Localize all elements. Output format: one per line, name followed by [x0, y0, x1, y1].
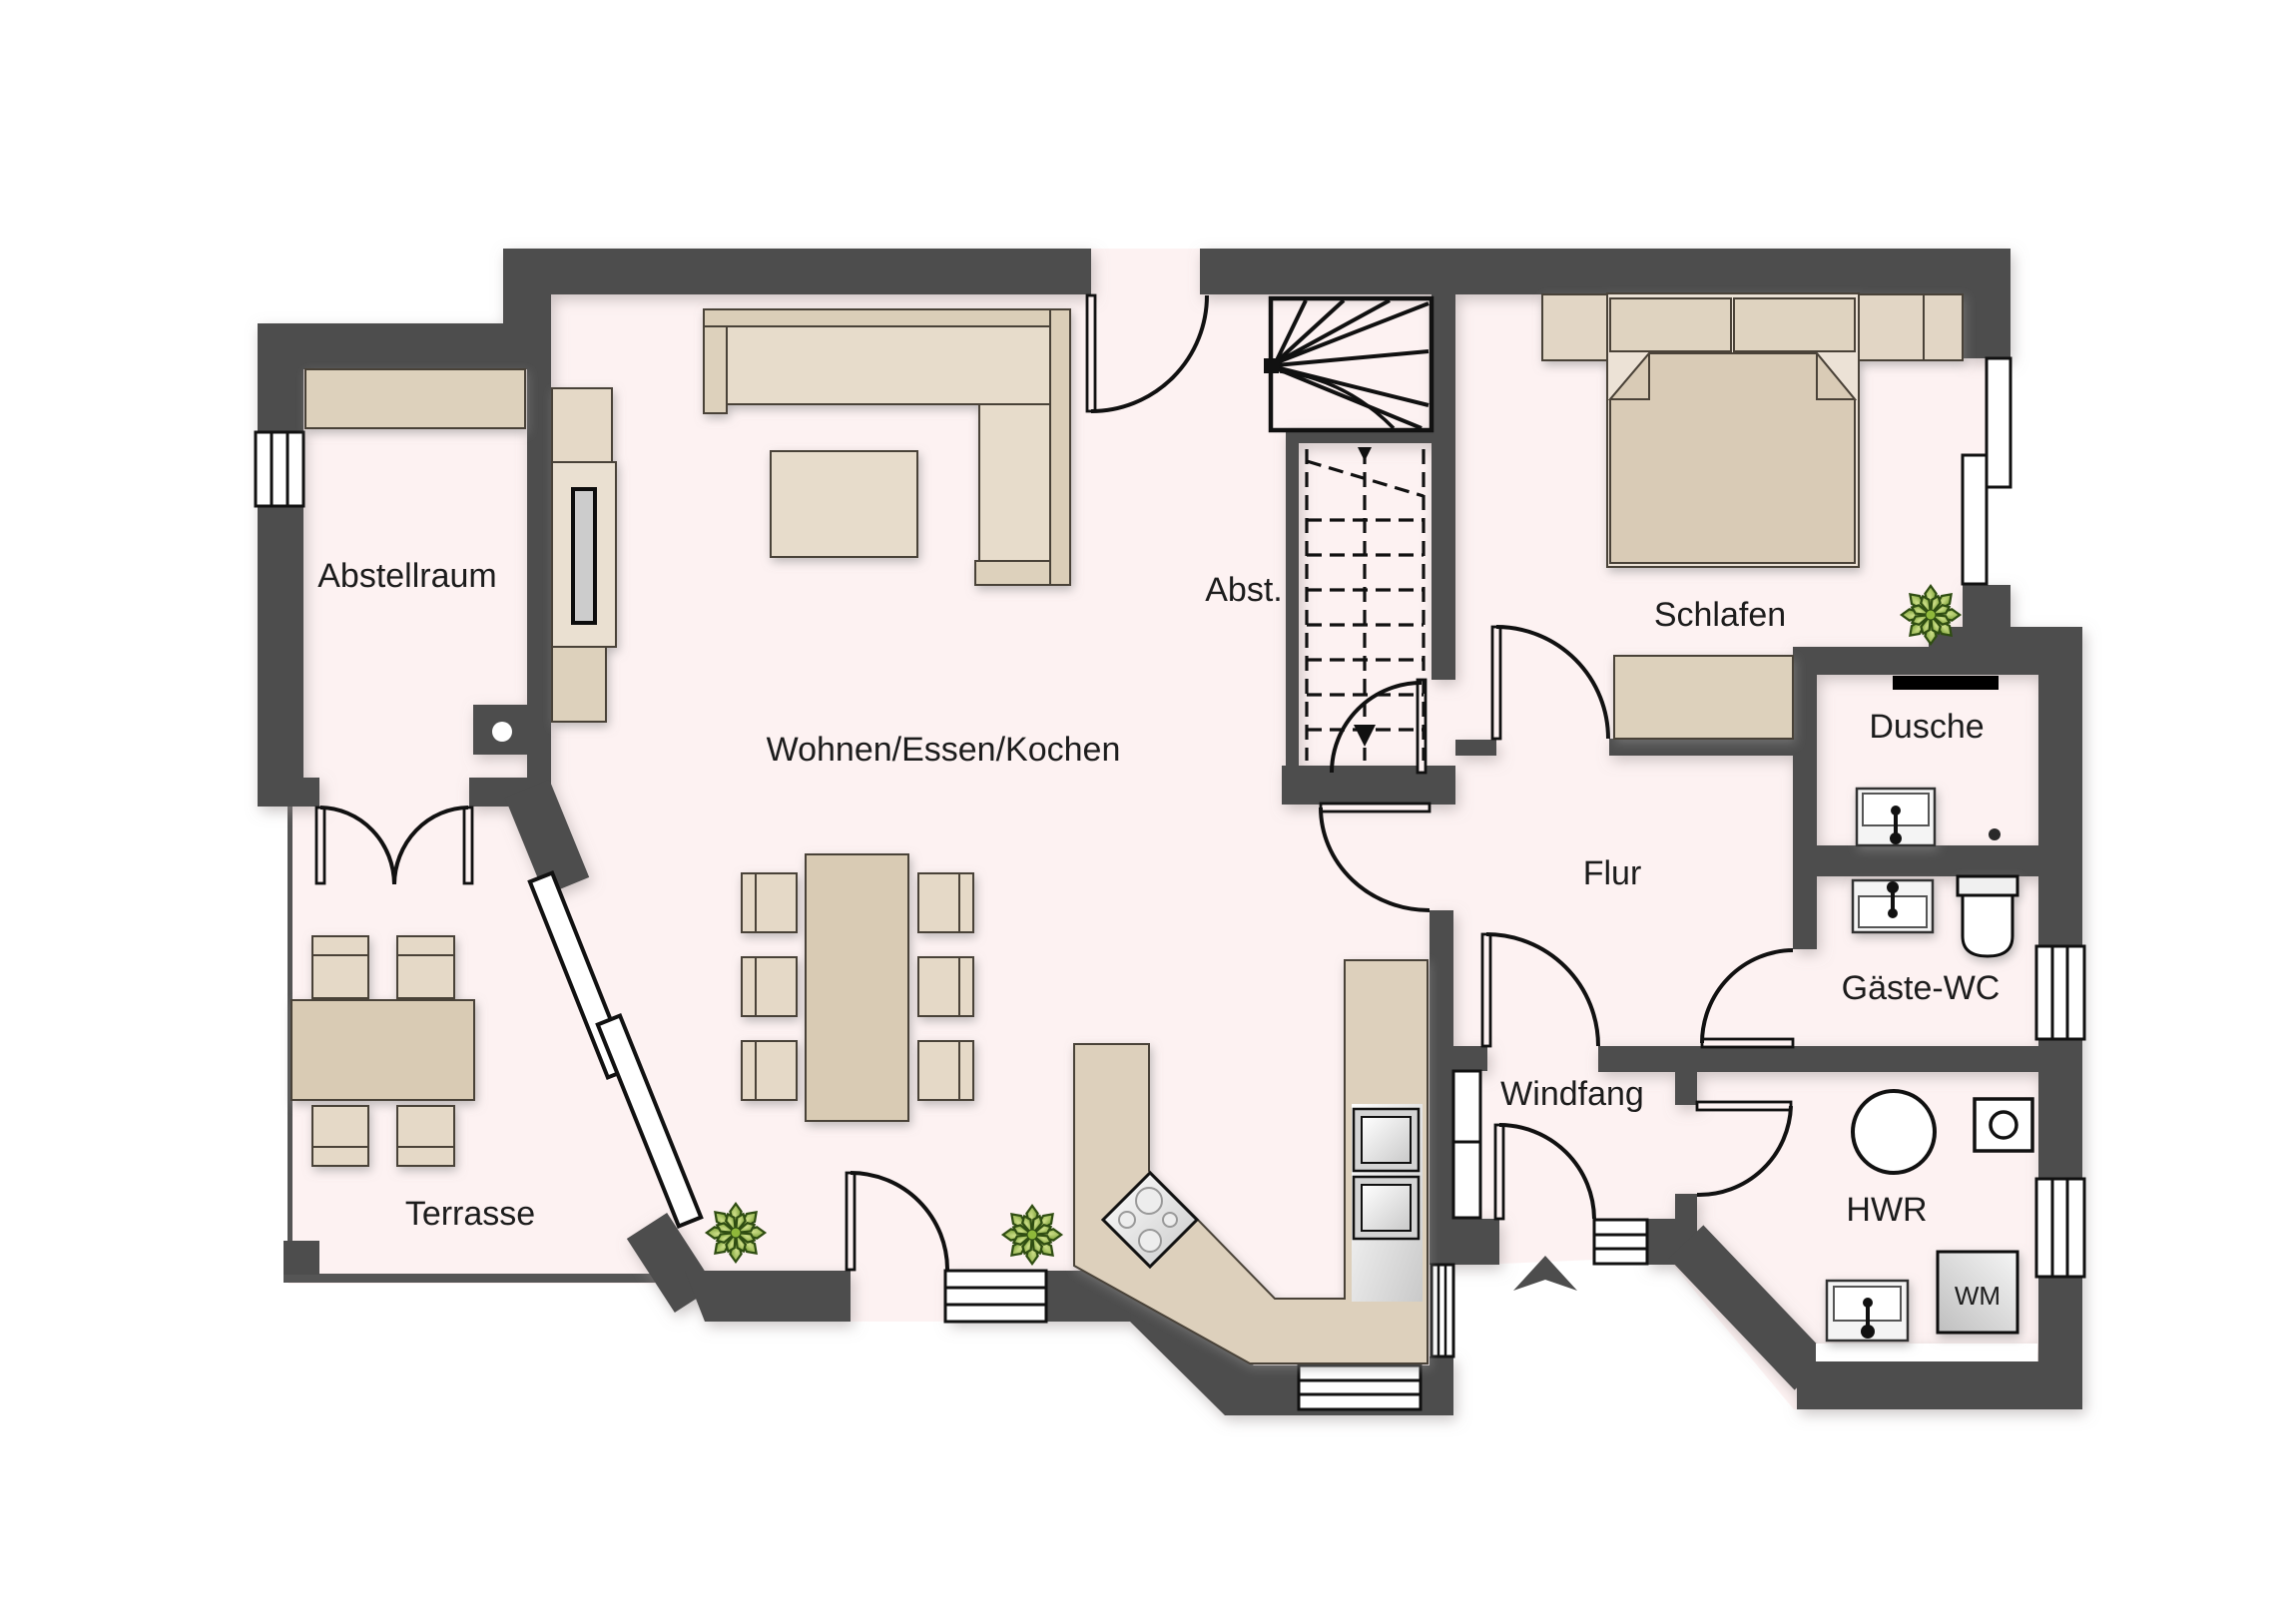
svg-text:Terrasse: Terrasse: [405, 1195, 535, 1233]
svg-text:Schlafen: Schlafen: [1654, 596, 1786, 634]
svg-text:Gäste-WC: Gäste-WC: [1842, 969, 2001, 1007]
svg-text:Abstellraum: Abstellraum: [317, 557, 497, 595]
svg-text:Windfang: Windfang: [1500, 1075, 1644, 1113]
svg-text:Abst.: Abst.: [1205, 571, 1282, 609]
svg-text:Wohnen/Essen/Kochen: Wohnen/Essen/Kochen: [767, 731, 1121, 769]
svg-text:Flur: Flur: [1583, 854, 1642, 892]
svg-text:WM: WM: [1955, 1281, 2001, 1311]
svg-text:HWR: HWR: [1846, 1191, 1927, 1229]
svg-text:Dusche: Dusche: [1869, 708, 1984, 746]
